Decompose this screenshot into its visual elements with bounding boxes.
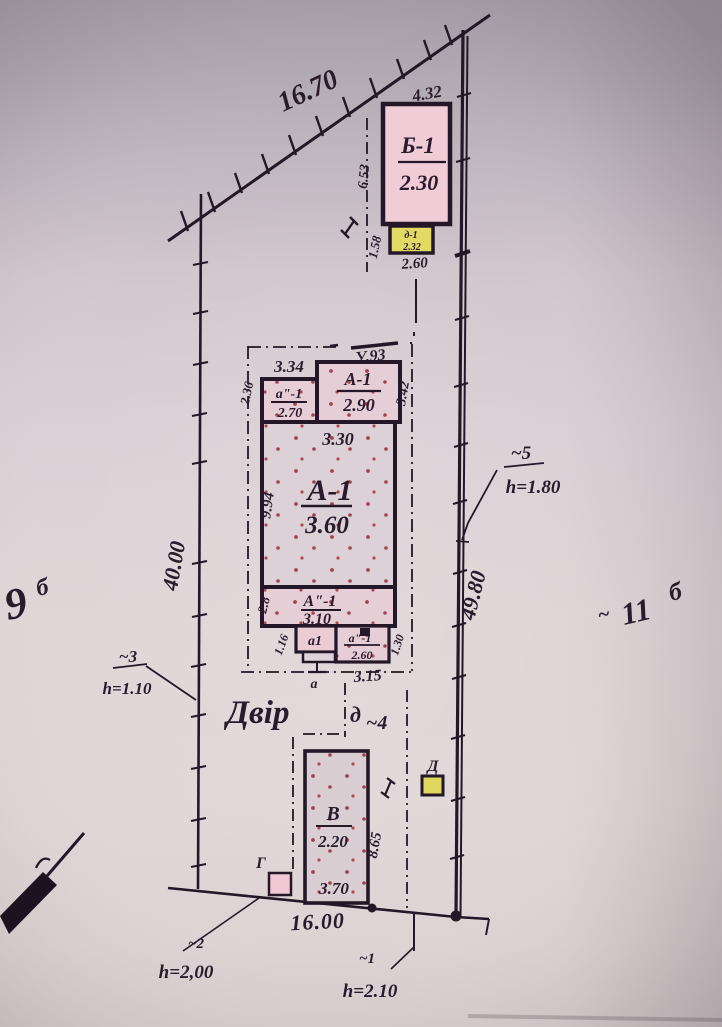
svg-text:3.70: 3.70: [318, 879, 349, 898]
svg-text:6.53: 6.53: [356, 164, 373, 190]
svg-text:а: а: [311, 677, 318, 692]
svg-text:~5: ~5: [511, 443, 532, 464]
svg-text:h=1.80: h=1.80: [506, 477, 561, 498]
svg-text:3.15: 3.15: [352, 667, 382, 686]
svg-text:2.20: 2.20: [317, 832, 348, 851]
svg-text:3.60: 3.60: [304, 512, 349, 539]
svg-text:~1: ~1: [359, 951, 375, 967]
svg-text:д: д: [350, 702, 361, 727]
svg-text:3.34: 3.34: [273, 357, 304, 376]
svg-text:~2: ~2: [188, 936, 205, 952]
svg-text:а1: а1: [308, 634, 322, 649]
svg-text:В: В: [325, 803, 339, 825]
svg-text:2.60: 2.60: [351, 648, 373, 662]
svg-text:h=2,00: h=2,00: [159, 962, 214, 983]
svg-text:3.30: 3.30: [321, 429, 354, 449]
svg-text:h=2.10: h=2.10: [343, 981, 398, 1002]
svg-text:2.32: 2.32: [402, 242, 421, 253]
svg-text:А-1: А-1: [306, 474, 353, 507]
svg-text:~4: ~4: [366, 712, 387, 734]
svg-text:2.70: 2.70: [277, 406, 303, 421]
svg-text:16.00: 16.00: [290, 908, 346, 936]
svg-text:Д: Д: [426, 758, 440, 775]
svg-text:а"-1: а"-1: [276, 387, 302, 402]
svg-text:~3: ~3: [119, 647, 138, 666]
svg-text:2.90: 2.90: [342, 395, 375, 415]
svg-text:Г: Г: [255, 855, 266, 872]
svg-text:А-1: А-1: [344, 369, 372, 389]
svg-text:2.60: 2.60: [400, 255, 429, 273]
svg-text:2.30: 2.30: [399, 170, 439, 195]
svg-text:h=1.10: h=1.10: [103, 679, 152, 698]
svg-text:А"-1: А"-1: [303, 593, 337, 610]
svg-text:Б-1: Б-1: [400, 133, 435, 158]
svg-text:Двір: Двір: [224, 695, 290, 731]
svg-text:д-1: д-1: [404, 230, 417, 241]
